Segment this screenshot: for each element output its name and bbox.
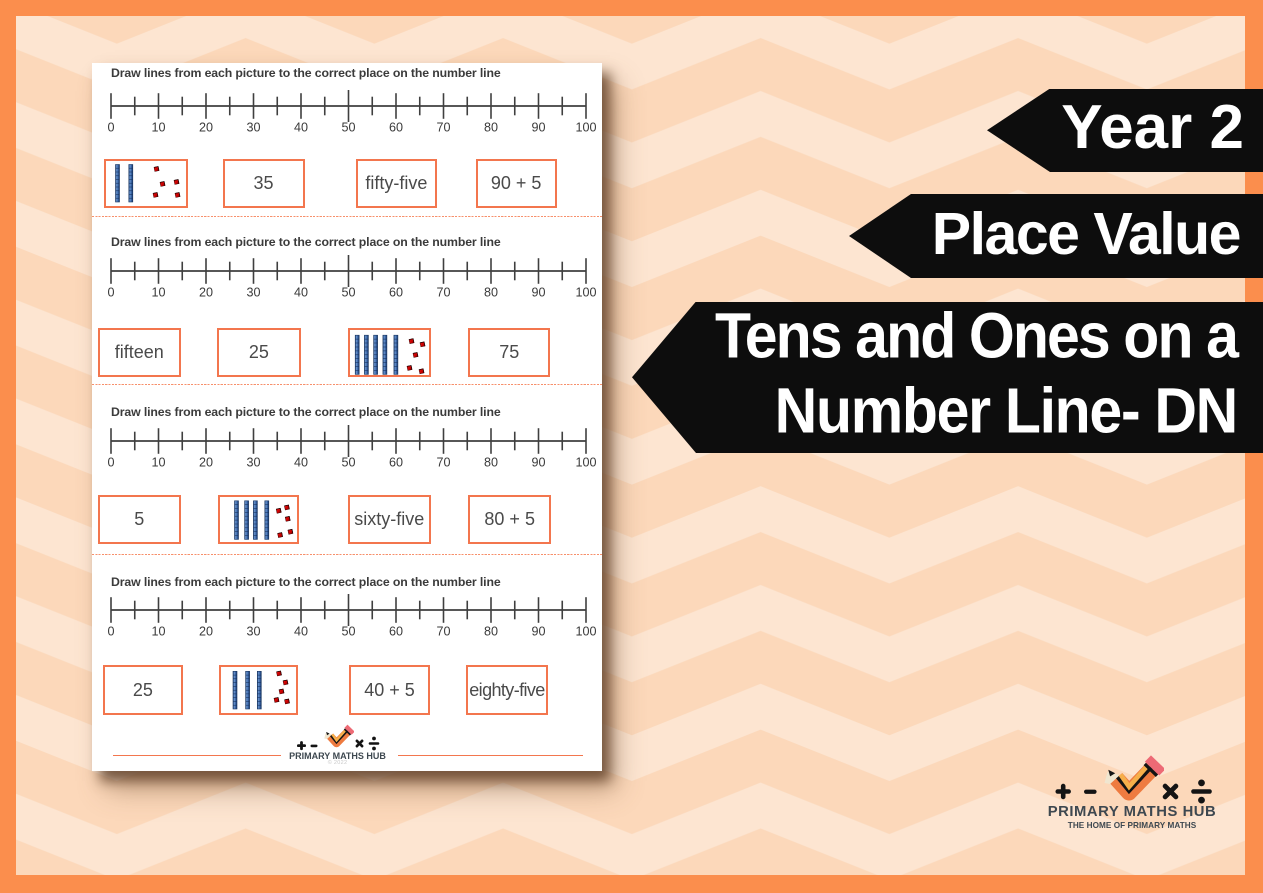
svg-text:30: 30	[246, 456, 260, 470]
svg-text:20: 20	[198, 456, 212, 470]
svg-text:40: 40	[293, 120, 307, 134]
svg-text:50: 50	[341, 120, 355, 134]
svg-text:90: 90	[531, 625, 545, 639]
svg-text:30: 30	[246, 625, 260, 639]
svg-text:80: 80	[483, 625, 497, 639]
svg-text:80: 80	[483, 120, 497, 134]
svg-text:0: 0	[107, 120, 114, 134]
svg-text:100: 100	[575, 120, 596, 134]
svg-text:50: 50	[341, 456, 355, 470]
svg-text:90: 90	[531, 286, 545, 300]
svg-text:60: 60	[388, 120, 402, 134]
svg-text:10: 10	[151, 625, 165, 639]
svg-text:80: 80	[483, 456, 497, 470]
svg-text:10: 10	[151, 456, 165, 470]
svg-text:70: 70	[436, 120, 450, 134]
svg-text:70: 70	[436, 625, 450, 639]
svg-text:80: 80	[483, 286, 497, 300]
svg-text:20: 20	[198, 120, 212, 134]
svg-text:100: 100	[575, 286, 596, 300]
svg-text:10: 10	[151, 286, 165, 300]
svg-text:60: 60	[388, 625, 402, 639]
svg-text:100: 100	[575, 625, 596, 639]
svg-text:70: 70	[436, 286, 450, 300]
svg-text:70: 70	[436, 456, 450, 470]
svg-text:30: 30	[246, 120, 260, 134]
svg-text:40: 40	[293, 625, 307, 639]
svg-text:0: 0	[107, 286, 114, 300]
svg-text:40: 40	[293, 456, 307, 470]
svg-text:20: 20	[198, 286, 212, 300]
svg-text:50: 50	[341, 625, 355, 639]
svg-text:40: 40	[293, 286, 307, 300]
svg-text:20: 20	[198, 625, 212, 639]
svg-text:100: 100	[575, 456, 596, 470]
svg-text:60: 60	[388, 286, 402, 300]
svg-text:0: 0	[107, 625, 114, 639]
svg-text:30: 30	[246, 286, 260, 300]
svg-text:10: 10	[151, 120, 165, 134]
svg-text:60: 60	[388, 456, 402, 470]
svg-text:0: 0	[107, 456, 114, 470]
svg-text:90: 90	[531, 120, 545, 134]
svg-text:90: 90	[531, 456, 545, 470]
svg-text:50: 50	[341, 286, 355, 300]
